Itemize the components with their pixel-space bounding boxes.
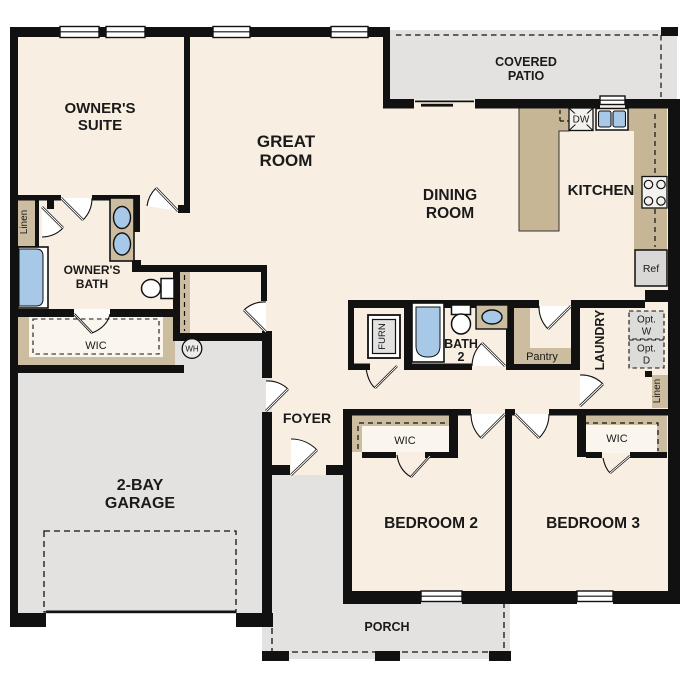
svg-text:PATIO: PATIO bbox=[508, 69, 545, 83]
svg-text:GARAGE: GARAGE bbox=[105, 495, 176, 512]
svg-text:ROOM: ROOM bbox=[260, 151, 313, 170]
svg-text:PORCH: PORCH bbox=[364, 620, 409, 634]
svg-text:2-BAY: 2-BAY bbox=[117, 477, 164, 494]
svg-text:Pantry: Pantry bbox=[526, 351, 558, 363]
svg-text:W: W bbox=[642, 327, 652, 338]
svg-text:KITCHEN: KITCHEN bbox=[568, 182, 635, 199]
svg-text:D: D bbox=[643, 356, 650, 367]
svg-text:WH: WH bbox=[185, 345, 199, 354]
svg-text:Ref: Ref bbox=[643, 263, 659, 275]
svg-text:BATH: BATH bbox=[444, 337, 478, 351]
svg-text:Opt.: Opt. bbox=[637, 315, 656, 326]
svg-text:DW: DW bbox=[573, 115, 590, 126]
svg-text:BEDROOM 2: BEDROOM 2 bbox=[384, 515, 478, 532]
svg-text:GREAT: GREAT bbox=[257, 132, 316, 151]
svg-text:WIC: WIC bbox=[606, 433, 627, 445]
svg-text:WIC: WIC bbox=[85, 340, 106, 352]
svg-text:Linen: Linen bbox=[652, 379, 663, 403]
svg-text:Linen: Linen bbox=[19, 210, 30, 234]
svg-text:LAUNDRY: LAUNDRY bbox=[593, 309, 607, 370]
svg-text:BEDROOM 3: BEDROOM 3 bbox=[546, 515, 640, 532]
svg-text:Opt.: Opt. bbox=[637, 344, 656, 355]
svg-text:COVERED: COVERED bbox=[495, 55, 557, 69]
svg-text:WIC: WIC bbox=[394, 435, 415, 447]
svg-text:SUITE: SUITE bbox=[78, 117, 122, 134]
svg-text:OWNER'S: OWNER'S bbox=[64, 263, 121, 277]
svg-text:ROOM: ROOM bbox=[426, 205, 474, 222]
svg-text:FOYER: FOYER bbox=[283, 410, 331, 426]
svg-text:BATH: BATH bbox=[76, 277, 108, 291]
svg-text:2: 2 bbox=[458, 350, 465, 364]
svg-text:FURN: FURN bbox=[377, 323, 388, 350]
svg-text:DINING: DINING bbox=[423, 187, 477, 204]
svg-text:OWNER'S: OWNER'S bbox=[64, 100, 135, 117]
